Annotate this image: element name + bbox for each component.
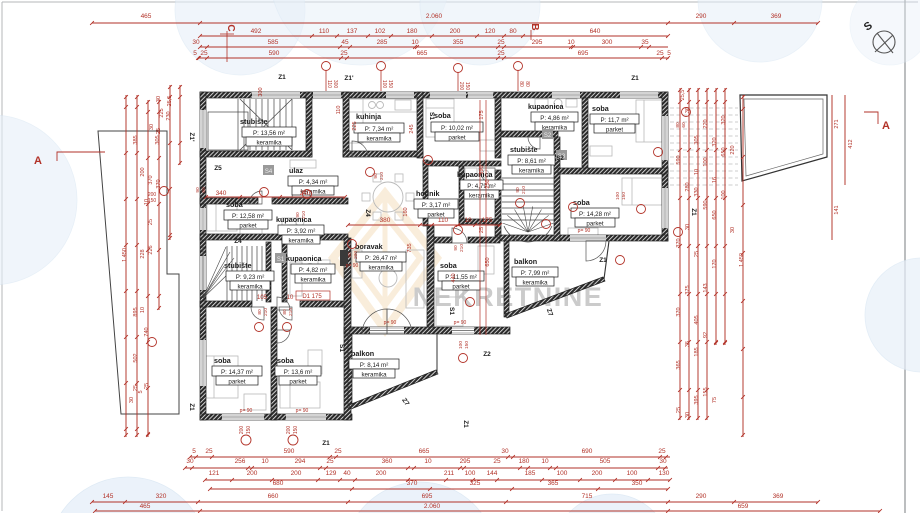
svg-text:p= 90: p= 90 <box>296 408 309 414</box>
svg-text:180: 180 <box>519 458 530 465</box>
svg-text:keramika: keramika <box>361 371 387 378</box>
svg-text:290: 290 <box>696 13 707 20</box>
svg-text:715: 715 <box>582 493 593 500</box>
svg-text:Z4: Z4 <box>364 209 371 217</box>
svg-text:210: 210 <box>301 211 307 219</box>
svg-text:290: 290 <box>696 493 707 500</box>
svg-text:parket: parket <box>228 378 245 385</box>
svg-text:P: 12,58 m²: P: 12,58 m² <box>232 213 264 220</box>
svg-text:690: 690 <box>582 448 593 455</box>
svg-text:Z2: Z2 <box>483 351 491 358</box>
svg-text:parket: parket <box>452 283 469 290</box>
svg-text:200: 200 <box>592 470 603 477</box>
svg-text:320: 320 <box>721 115 727 124</box>
svg-text:100: 100 <box>458 341 464 349</box>
svg-text:P: 8,61 m²: P: 8,61 m² <box>517 158 546 165</box>
svg-text:405: 405 <box>694 315 700 324</box>
svg-text:keramika: keramika <box>519 167 545 174</box>
svg-text:280: 280 <box>685 182 691 191</box>
svg-text:P: 7,34 m²: P: 7,34 m² <box>365 126 394 133</box>
svg-text:25: 25 <box>133 385 139 391</box>
svg-text:stubište: stubište <box>224 261 252 270</box>
svg-text:Z1: Z1 <box>462 420 469 428</box>
svg-text:25: 25 <box>676 407 682 413</box>
svg-text:Z1: Z1 <box>631 75 639 82</box>
svg-text:502: 502 <box>133 353 139 362</box>
svg-text:balkon: balkon <box>351 349 374 358</box>
svg-text:325: 325 <box>470 480 481 487</box>
svg-text:110: 110 <box>438 217 449 224</box>
svg-text:30: 30 <box>659 458 667 465</box>
svg-text:160: 160 <box>403 207 409 216</box>
svg-text:120: 120 <box>485 28 496 35</box>
svg-text:30: 30 <box>186 458 194 465</box>
svg-text:100: 100 <box>627 470 638 477</box>
svg-text:60: 60 <box>681 122 687 128</box>
svg-text:150: 150 <box>464 82 470 91</box>
svg-text:380: 380 <box>380 217 391 224</box>
svg-text:80: 80 <box>524 81 530 87</box>
svg-text:25: 25 <box>144 383 150 389</box>
svg-text:soba: soba <box>440 261 458 270</box>
svg-text:S1: S1 <box>277 257 285 263</box>
svg-text:D1 175: D1 175 <box>302 294 322 300</box>
svg-text:25: 25 <box>340 50 348 57</box>
svg-text:hodnik: hodnik <box>416 189 440 198</box>
svg-text:150: 150 <box>621 192 627 200</box>
svg-text:stubište: stubište <box>510 145 538 154</box>
svg-text:16: 16 <box>712 177 718 183</box>
svg-text:105: 105 <box>257 295 268 301</box>
svg-text:121: 121 <box>209 470 220 477</box>
svg-text:145: 145 <box>103 493 114 500</box>
svg-text:30: 30 <box>685 412 691 418</box>
svg-text:P: 8,14 m²: P: 8,14 m² <box>360 362 389 369</box>
svg-text:240: 240 <box>300 190 311 197</box>
svg-text:492: 492 <box>251 28 262 35</box>
svg-text:boravak: boravak <box>355 242 383 251</box>
svg-text:30: 30 <box>685 224 691 230</box>
svg-text:650: 650 <box>721 147 727 156</box>
svg-text:90: 90 <box>453 245 459 251</box>
svg-text:10: 10 <box>541 458 549 465</box>
svg-text:P: 3,17 m²: P: 3,17 m² <box>422 202 451 209</box>
svg-text:210: 210 <box>379 172 385 180</box>
svg-text:102: 102 <box>375 28 386 35</box>
svg-text:parket: parket <box>239 222 256 229</box>
svg-text:185: 185 <box>694 347 700 356</box>
svg-text:320: 320 <box>712 137 718 146</box>
svg-text:soba: soba <box>592 104 610 113</box>
svg-text:80: 80 <box>675 122 681 128</box>
svg-text:100: 100 <box>703 157 709 166</box>
svg-text:210: 210 <box>288 308 294 316</box>
svg-text:465: 465 <box>140 503 151 510</box>
svg-text:25: 25 <box>497 50 505 57</box>
svg-text:P: 4,79 m²: P: 4,79 m² <box>467 183 496 190</box>
svg-text:parket: parket <box>289 378 306 385</box>
svg-text:330: 330 <box>694 187 700 196</box>
svg-text:25: 25 <box>694 251 700 257</box>
svg-text:P: 9,23 m²: P: 9,23 m² <box>236 274 265 281</box>
svg-text:25,5: 25,5 <box>680 90 686 101</box>
svg-text:25: 25 <box>148 219 154 225</box>
svg-text:soba: soba <box>214 356 232 365</box>
svg-text:295: 295 <box>532 39 543 46</box>
svg-text:210: 210 <box>263 308 269 316</box>
svg-text:C: C <box>225 24 236 31</box>
svg-text:25: 25 <box>200 50 208 57</box>
svg-text:kupaonica: kupaonica <box>276 215 313 224</box>
svg-text:Z1: Z1 <box>188 403 195 411</box>
svg-text:200: 200 <box>239 426 245 435</box>
svg-text:P: 14,37 m²: P: 14,37 m² <box>221 369 253 376</box>
svg-text:keramika: keramika <box>368 264 394 271</box>
svg-text:141: 141 <box>834 205 840 214</box>
svg-text:S1: S1 <box>448 307 455 315</box>
svg-text:360: 360 <box>382 458 393 465</box>
svg-text:110: 110 <box>326 80 332 88</box>
svg-text:30: 30 <box>129 397 135 403</box>
svg-text:p= 90: p= 90 <box>384 320 397 326</box>
svg-text:80: 80 <box>257 309 263 315</box>
svg-text:143: 143 <box>703 283 709 292</box>
svg-text:129: 129 <box>326 470 337 477</box>
svg-text:285: 285 <box>377 39 388 46</box>
svg-text:210: 210 <box>459 244 465 252</box>
svg-text:895: 895 <box>133 307 139 316</box>
svg-text:10: 10 <box>287 295 294 301</box>
svg-text:S2: S2 <box>544 133 552 139</box>
svg-text:P: 11,55 m²: P: 11,55 m² <box>445 274 477 281</box>
svg-text:soba: soba <box>226 200 244 209</box>
svg-text:590: 590 <box>269 50 280 57</box>
svg-text:80: 80 <box>347 252 353 258</box>
svg-text:soba: soba <box>573 198 591 207</box>
svg-text:parket: parket <box>586 220 603 227</box>
svg-text:150: 150 <box>464 341 470 349</box>
svg-text:295: 295 <box>460 458 471 465</box>
svg-text:40: 40 <box>343 470 351 477</box>
svg-text:kupaonica: kupaonica <box>528 102 565 111</box>
svg-text:p= 90: p= 90 <box>346 263 359 269</box>
svg-text:200: 200 <box>247 470 258 477</box>
svg-text:370: 370 <box>407 480 418 487</box>
svg-text:110: 110 <box>336 106 342 115</box>
svg-text:ulaz: ulaz <box>289 166 303 175</box>
svg-text:175: 175 <box>482 217 493 224</box>
svg-text:2.060: 2.060 <box>426 13 443 20</box>
svg-text:10: 10 <box>140 307 146 313</box>
svg-text:220: 220 <box>730 145 736 154</box>
svg-text:25: 25 <box>156 128 162 134</box>
svg-text:200: 200 <box>353 251 359 259</box>
svg-text:30: 30 <box>149 124 155 130</box>
svg-text:75: 75 <box>712 397 718 403</box>
svg-text:P: 3,92 m²: P: 3,92 m² <box>287 228 316 235</box>
svg-text:Z5: Z5 <box>214 165 222 172</box>
svg-text:Z1: Z1 <box>690 208 697 216</box>
svg-text:370: 370 <box>148 175 154 184</box>
svg-text:kupaonica: kupaonica <box>286 254 323 263</box>
svg-text:370: 370 <box>676 238 682 247</box>
svg-text:parket: parket <box>606 126 623 133</box>
svg-text:P: 4,82 m²: P: 4,82 m² <box>299 267 328 274</box>
svg-text:keramika: keramika <box>366 135 392 142</box>
svg-text:110: 110 <box>319 28 330 35</box>
svg-text:Z1': Z1' <box>188 132 195 142</box>
svg-text:10: 10 <box>567 39 575 46</box>
svg-text:590: 590 <box>703 200 709 209</box>
svg-text:412: 412 <box>848 139 854 148</box>
svg-text:200: 200 <box>140 167 146 176</box>
svg-text:A: A <box>882 120 890 132</box>
svg-text:P: 13,6 m²: P: 13,6 m² <box>284 369 313 376</box>
svg-text:balkon: balkon <box>514 257 537 266</box>
svg-text:650: 650 <box>712 210 718 219</box>
svg-text:226: 226 <box>148 245 154 254</box>
svg-text:150: 150 <box>293 426 299 435</box>
svg-text:210: 210 <box>521 186 527 194</box>
svg-text:155: 155 <box>703 387 709 396</box>
svg-text:150: 150 <box>387 80 393 89</box>
svg-text:p= 90: p= 90 <box>240 408 253 414</box>
svg-text:Z1: Z1 <box>278 74 286 81</box>
svg-text:keramika: keramika <box>522 279 548 286</box>
svg-text:S4: S4 <box>265 169 273 175</box>
svg-text:365: 365 <box>548 480 559 487</box>
svg-text:225: 225 <box>159 108 165 117</box>
svg-text:200: 200 <box>286 426 292 435</box>
svg-text:P: 4,86 m²: P: 4,86 m² <box>540 115 569 122</box>
svg-text:230: 230 <box>166 111 172 120</box>
svg-text:200: 200 <box>458 82 464 91</box>
svg-text:S1: S1 <box>338 344 345 352</box>
svg-text:370: 370 <box>676 307 682 316</box>
svg-text:505: 505 <box>600 458 611 465</box>
svg-text:S2: S2 <box>556 156 564 162</box>
svg-text:695: 695 <box>422 493 433 500</box>
svg-text:keramika: keramika <box>469 192 495 199</box>
svg-text:440: 440 <box>451 273 457 282</box>
svg-text:keramika: keramika <box>288 237 314 244</box>
svg-text:144: 144 <box>487 470 498 477</box>
svg-text:30: 30 <box>501 448 509 455</box>
svg-text:300: 300 <box>332 80 338 89</box>
svg-text:Z1: Z1 <box>599 257 607 264</box>
svg-text:369: 369 <box>773 493 784 500</box>
svg-text:60: 60 <box>201 187 207 193</box>
svg-text:2.060: 2.060 <box>424 503 441 510</box>
svg-text:590: 590 <box>676 155 682 164</box>
svg-text:25,5: 25,5 <box>167 96 173 107</box>
svg-text:25: 25 <box>205 448 213 455</box>
svg-text:30: 30 <box>156 96 162 102</box>
svg-text:100: 100 <box>465 470 476 477</box>
svg-text:35: 35 <box>641 39 649 46</box>
svg-text:10: 10 <box>694 169 700 175</box>
svg-text:228: 228 <box>140 249 146 258</box>
svg-text:100: 100 <box>381 80 387 89</box>
svg-text:5: 5 <box>667 50 671 57</box>
svg-text:30: 30 <box>192 39 200 46</box>
svg-text:1.450: 1.450 <box>739 253 745 267</box>
svg-text:640: 640 <box>590 28 601 35</box>
svg-text:P: 10,02 m²: P: 10,02 m² <box>441 125 473 132</box>
svg-text:740: 740 <box>144 327 150 336</box>
svg-text:220: 220 <box>703 119 709 128</box>
svg-text:45: 45 <box>341 39 349 46</box>
svg-text:30: 30 <box>730 227 736 233</box>
svg-text:p= 90: p= 90 <box>578 228 591 234</box>
svg-text:A: A <box>34 155 42 167</box>
svg-text:585: 585 <box>268 39 279 46</box>
svg-text:465: 465 <box>141 13 152 20</box>
svg-text:590: 590 <box>284 448 295 455</box>
svg-text:680: 680 <box>273 480 284 487</box>
svg-text:10: 10 <box>424 458 432 465</box>
svg-text:385: 385 <box>133 135 139 144</box>
svg-text:305: 305 <box>155 135 161 144</box>
svg-text:P: 26,47 m²: P: 26,47 m² <box>365 255 397 262</box>
svg-text:Z1': Z1' <box>344 75 354 82</box>
svg-text:80: 80 <box>509 28 517 35</box>
svg-text:5: 5 <box>193 50 197 57</box>
svg-text:660: 660 <box>268 493 279 500</box>
svg-text:kuhinja: kuhinja <box>356 112 382 121</box>
svg-text:80: 80 <box>518 81 524 87</box>
svg-text:keramika: keramika <box>256 139 282 146</box>
svg-text:25: 25 <box>658 448 666 455</box>
svg-text:92: 92 <box>703 332 709 338</box>
svg-text:B: B <box>529 23 540 30</box>
svg-text:170: 170 <box>712 259 718 268</box>
svg-text:90: 90 <box>295 212 301 218</box>
svg-text:100: 100 <box>721 190 727 199</box>
svg-text:137: 137 <box>347 28 358 35</box>
svg-text:300: 300 <box>258 87 264 96</box>
svg-text:5: 5 <box>138 390 144 393</box>
svg-text:375: 375 <box>685 285 691 294</box>
svg-text:keramika: keramika <box>300 276 326 283</box>
svg-text:90: 90 <box>515 187 521 193</box>
svg-text:25: 25 <box>497 39 505 46</box>
svg-text:80: 80 <box>282 309 288 315</box>
svg-text:Z4: Z4 <box>234 238 242 245</box>
svg-text:10: 10 <box>464 217 472 224</box>
svg-text:256: 256 <box>235 458 246 465</box>
svg-text:185: 185 <box>525 470 536 477</box>
svg-text:180: 180 <box>407 28 418 35</box>
svg-text:P: 11,7 m²: P: 11,7 m² <box>600 117 628 124</box>
svg-text:365: 365 <box>676 360 682 369</box>
svg-text:Z1: Z1 <box>322 440 330 447</box>
svg-text:200: 200 <box>450 28 461 35</box>
svg-text:350: 350 <box>632 480 643 487</box>
svg-text:35: 35 <box>685 341 691 347</box>
svg-text:90: 90 <box>195 187 201 193</box>
svg-text:soba: soba <box>277 356 295 365</box>
svg-text:1.450: 1.450 <box>122 248 128 262</box>
svg-text:P: 14,28 m²: P: 14,28 m² <box>579 211 611 218</box>
svg-text:355: 355 <box>453 39 464 46</box>
svg-text:395: 395 <box>694 395 700 404</box>
svg-text:25: 25 <box>334 448 342 455</box>
svg-text:305: 305 <box>694 135 700 144</box>
svg-text:225: 225 <box>352 121 358 130</box>
svg-text:245: 245 <box>409 124 415 133</box>
svg-text:320: 320 <box>156 493 167 500</box>
svg-text:665: 665 <box>417 50 428 57</box>
svg-text:P: 7,99 m²: P: 7,99 m² <box>521 270 550 277</box>
svg-text:200: 200 <box>376 470 387 477</box>
svg-text:stubište: stubište <box>240 117 268 126</box>
svg-text:25: 25 <box>493 458 501 465</box>
svg-text:parket: parket <box>448 134 465 141</box>
svg-text:130: 130 <box>659 470 670 477</box>
svg-text:p= 90: p= 90 <box>454 320 467 326</box>
svg-text:150: 150 <box>246 426 252 435</box>
svg-text:25: 25 <box>656 50 664 57</box>
svg-text:100: 100 <box>615 192 621 200</box>
svg-text:735: 735 <box>407 243 413 252</box>
svg-text:90: 90 <box>373 173 379 179</box>
svg-text:P: 13,56 m²: P: 13,56 m² <box>253 130 285 137</box>
svg-text:P: 4,34 m²: P: 4,34 m² <box>299 179 328 186</box>
svg-text:300: 300 <box>602 39 613 46</box>
svg-text:10: 10 <box>261 458 269 465</box>
svg-text:kupaonica: kupaonica <box>457 170 494 179</box>
svg-text:S1: S1 <box>428 112 435 120</box>
svg-text:271: 271 <box>834 119 840 128</box>
svg-text:340: 340 <box>216 190 227 197</box>
svg-text:665: 665 <box>419 448 430 455</box>
svg-text:soba: soba <box>434 111 452 120</box>
svg-text:keramika: keramika <box>237 283 263 290</box>
svg-text:10: 10 <box>411 39 419 46</box>
svg-text:695: 695 <box>578 50 589 57</box>
svg-text:369: 369 <box>771 13 782 20</box>
svg-text:5: 5 <box>192 448 196 455</box>
svg-text:150: 150 <box>148 198 157 204</box>
svg-text:200: 200 <box>291 470 302 477</box>
svg-text:25: 25 <box>326 458 334 465</box>
svg-text:294: 294 <box>295 458 306 465</box>
svg-text:211: 211 <box>444 470 455 477</box>
svg-text:659: 659 <box>738 503 749 510</box>
svg-text:100: 100 <box>557 470 568 477</box>
